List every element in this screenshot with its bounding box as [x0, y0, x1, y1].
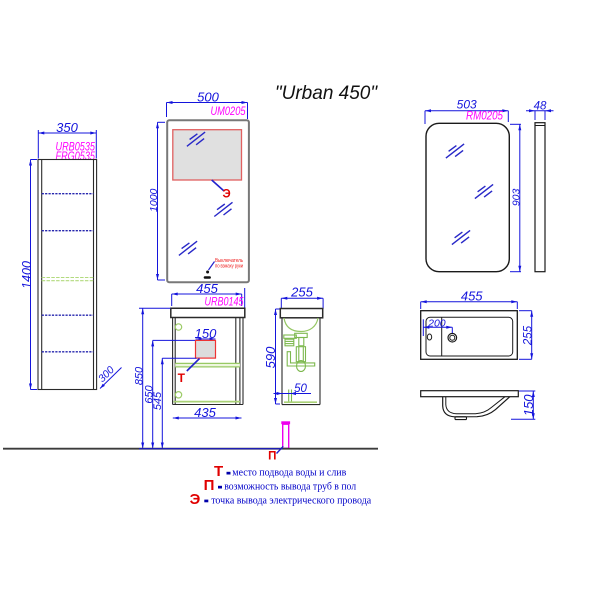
svg-text:UM0205: UM0205: [211, 106, 246, 118]
svg-text:Т: Т: [214, 463, 223, 480]
svg-text:590: 590: [263, 346, 278, 368]
svg-text:455: 455: [196, 281, 218, 296]
svg-text:50: 50: [294, 383, 307, 395]
svg-text:500: 500: [197, 90, 219, 105]
svg-text:503: 503: [457, 98, 477, 112]
svg-text:Э: Э: [190, 491, 201, 508]
svg-text:903: 903: [510, 188, 522, 206]
svg-text:350: 350: [56, 120, 78, 135]
svg-text:по взмаху руки: по взмаху руки: [215, 264, 243, 270]
svg-text:1000: 1000: [148, 188, 160, 212]
svg-text:850: 850: [133, 366, 145, 385]
svg-text:150: 150: [195, 326, 217, 341]
svg-text:255: 255: [522, 325, 534, 346]
svg-text:URB0145: URB0145: [205, 296, 244, 308]
svg-text:1400: 1400: [20, 261, 34, 289]
svg-text:П: П: [204, 477, 215, 494]
svg-text:П: П: [268, 450, 276, 462]
svg-text:455: 455: [461, 289, 483, 304]
svg-text:48: 48: [534, 100, 547, 112]
svg-text:150: 150: [521, 394, 536, 416]
svg-text:435: 435: [194, 405, 216, 420]
svg-text:место подвода воды и слив: место подвода воды и слив: [232, 468, 346, 479]
svg-text:200: 200: [427, 318, 446, 330]
svg-text:возможность вывода труб в пол: возможность вывода труб в пол: [224, 482, 356, 493]
svg-text:Э: Э: [223, 189, 231, 201]
svg-text:FRG0535: FRG0535: [56, 151, 96, 163]
svg-text:точка вывода электрического пр: точка вывода электрического провода: [211, 495, 372, 506]
svg-text:255: 255: [290, 284, 313, 299]
svg-text:545: 545: [152, 391, 164, 410]
svg-text:"Urban 450": "Urban 450": [275, 83, 378, 104]
svg-text:Т: Т: [178, 371, 186, 385]
svg-text:RM0205: RM0205: [466, 111, 504, 123]
